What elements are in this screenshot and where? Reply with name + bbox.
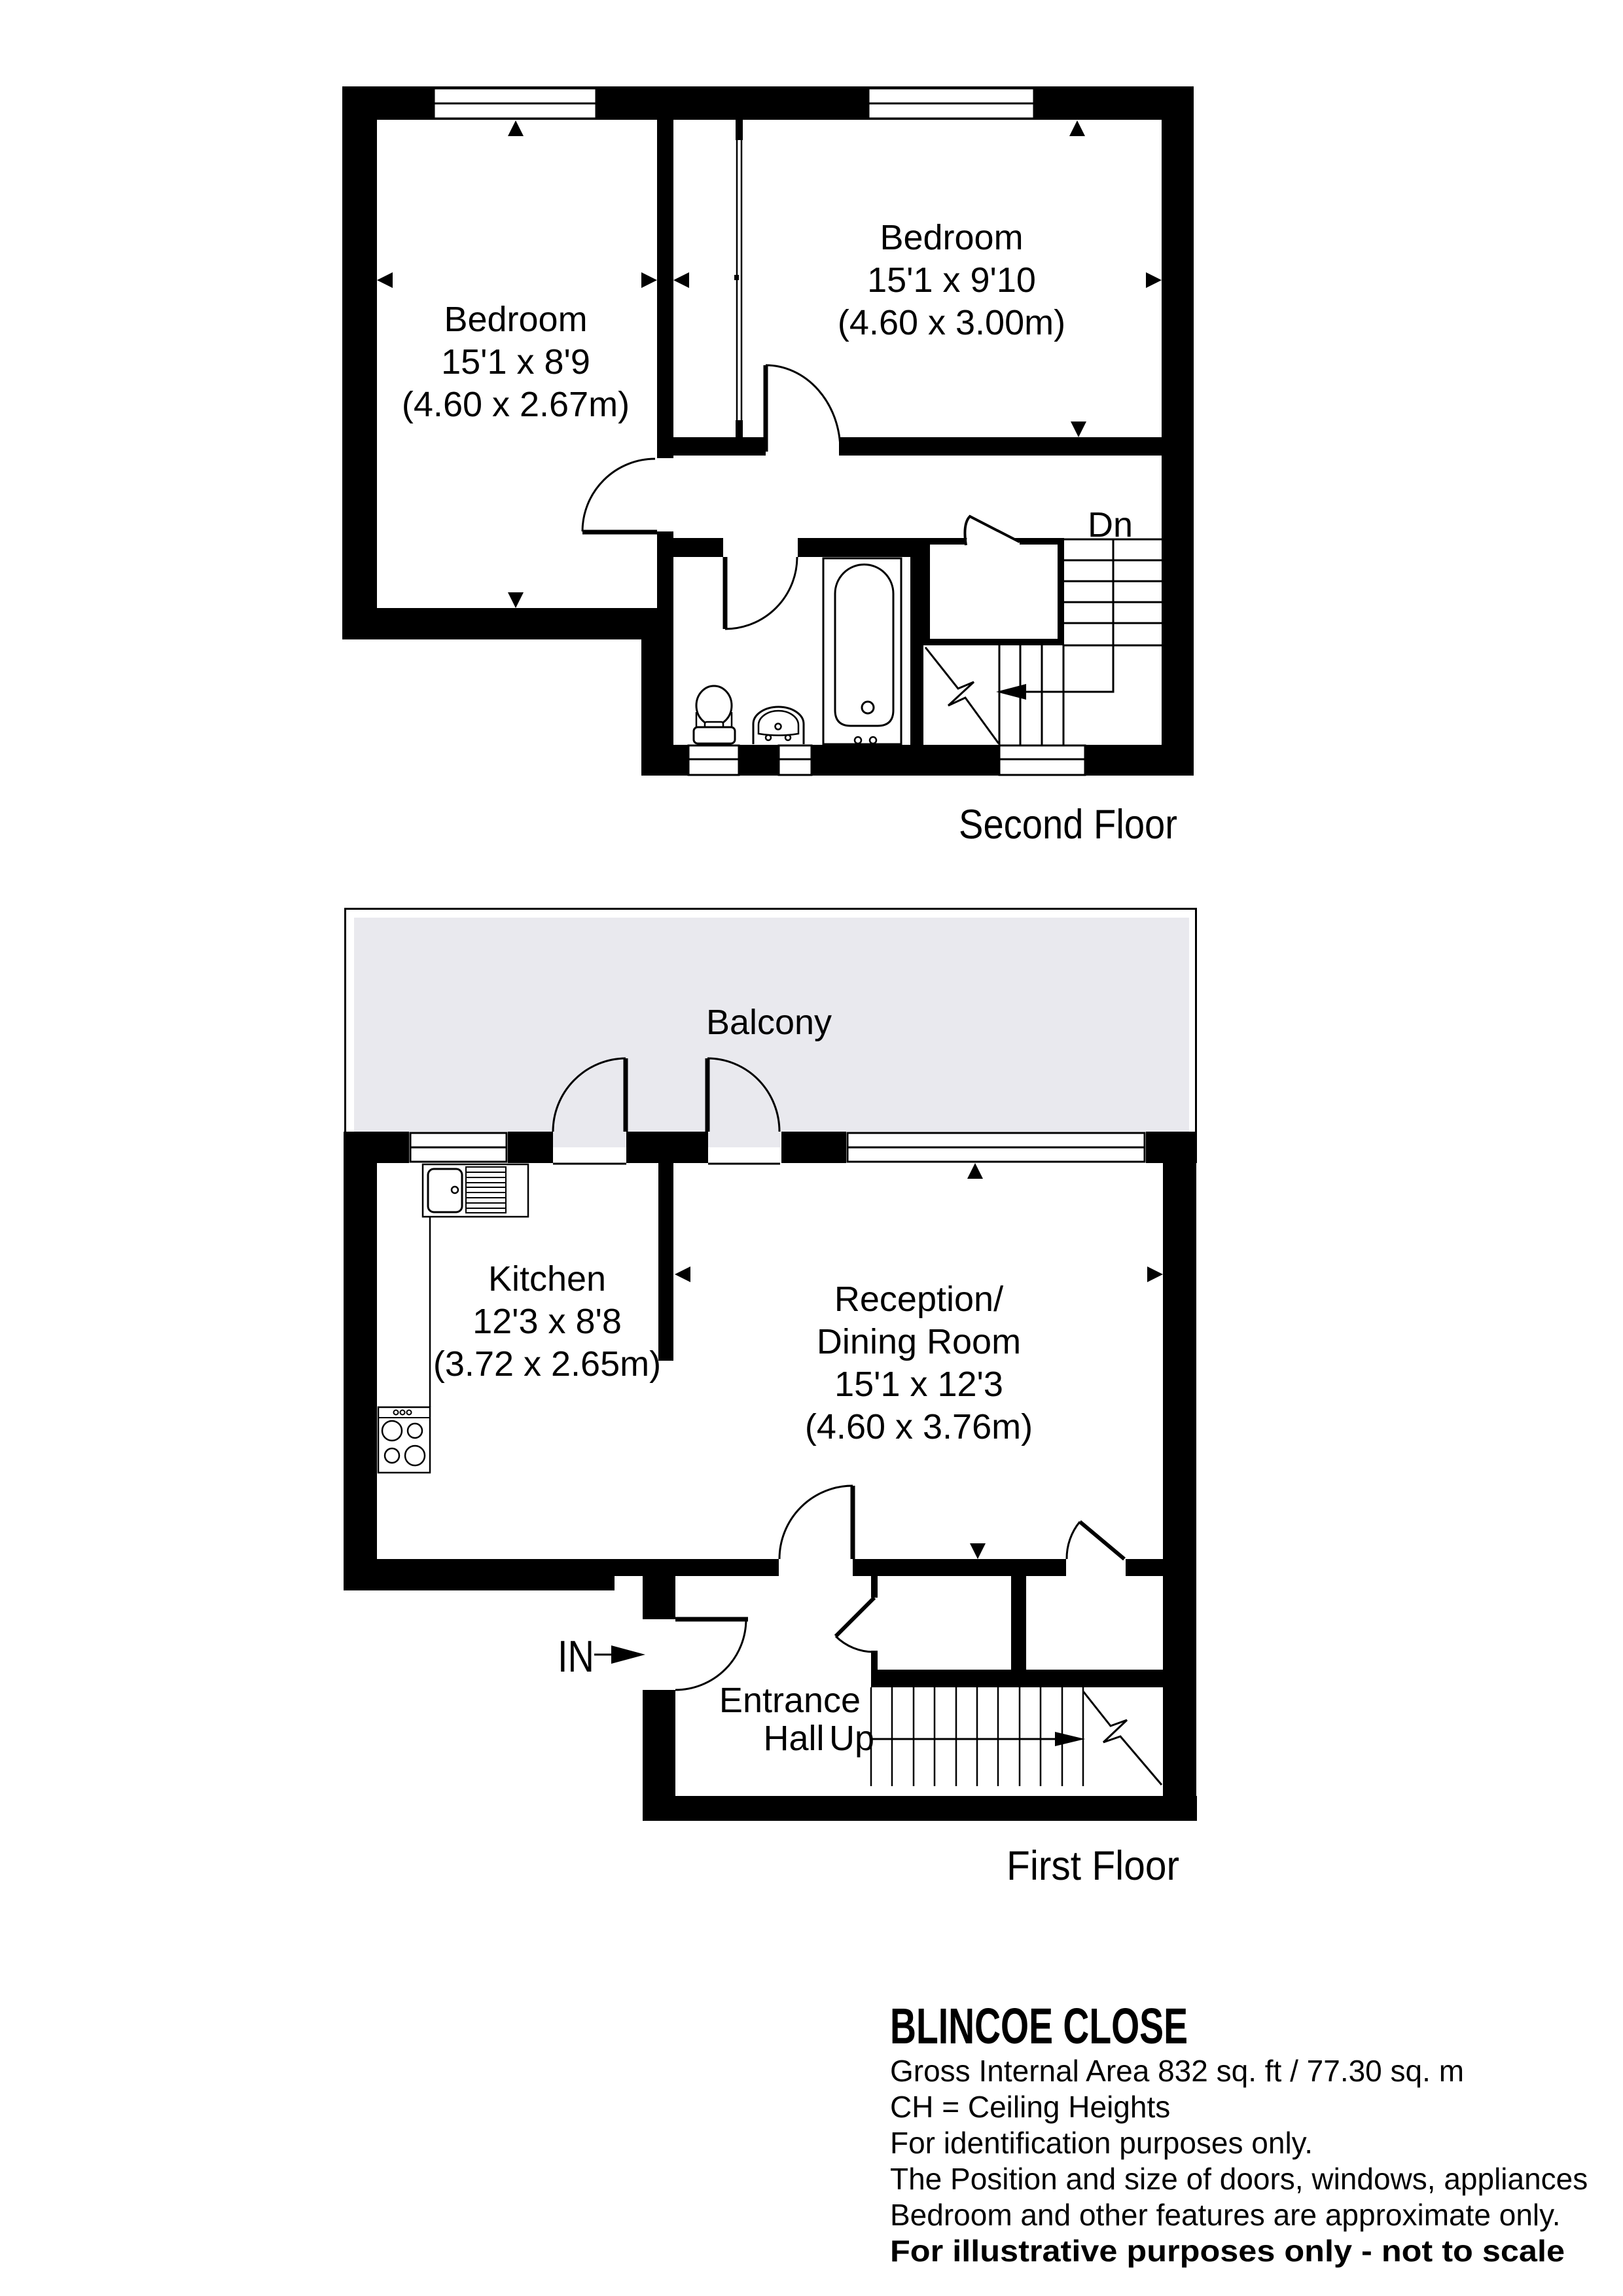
svg-text:Reception/: Reception/ — [834, 1280, 1003, 1319]
svg-text:The Position and size of doors: The Position and size of doors, windows,… — [890, 2162, 1588, 2196]
svg-text:Bedroom: Bedroom — [444, 300, 587, 339]
svg-text:Bedroom and other features are: Bedroom and other features are approxima… — [890, 2198, 1561, 2232]
svg-text:(3.72 x 2.65m): (3.72 x 2.65m) — [433, 1344, 661, 1384]
svg-text:Gross Internal Area 832 sq. ft: Gross Internal Area 832 sq. ft / 77.30 s… — [890, 2054, 1464, 2088]
svg-text:Dn: Dn — [1088, 505, 1133, 545]
svg-text:For identification purposes on: For identification purposes only. — [890, 2126, 1313, 2160]
svg-text:Second Floor: Second Floor — [959, 802, 1177, 848]
svg-text:Bedroom: Bedroom — [880, 218, 1023, 257]
svg-text:15'1 x 12'3: 15'1 x 12'3 — [834, 1365, 1003, 1404]
svg-text:12'3 x 8'8: 12'3 x 8'8 — [473, 1302, 622, 1341]
svg-text:Balcony: Balcony — [706, 1003, 832, 1042]
svg-text:IN: IN — [558, 1632, 594, 1681]
svg-text:Kitchen: Kitchen — [488, 1259, 606, 1299]
svg-text:Dining Room: Dining Room — [817, 1322, 1021, 1361]
svg-text:(4.60 x 3.00m): (4.60 x 3.00m) — [838, 303, 1065, 342]
svg-text:BLINCOE CLOSE: BLINCOE CLOSE — [890, 1998, 1188, 2054]
svg-text:CH = Ceiling Heights: CH = Ceiling Heights — [890, 2090, 1170, 2124]
svg-text:(4.60 x 3.76m): (4.60 x 3.76m) — [805, 1407, 1033, 1446]
svg-text:Entrance: Entrance — [719, 1681, 861, 1720]
svg-text:Up: Up — [829, 1719, 874, 1758]
svg-text:For illustrative purposes only: For illustrative purposes only - not to … — [890, 2234, 1565, 2268]
svg-text:First Floor: First Floor — [1007, 1843, 1179, 1889]
svg-text:Hall: Hall — [763, 1719, 824, 1758]
svg-text:15'1 x 9'10: 15'1 x 9'10 — [867, 260, 1036, 300]
svg-text:(4.60 x 2.67m): (4.60 x 2.67m) — [402, 385, 630, 424]
svg-text:15'1 x 8'9: 15'1 x 8'9 — [441, 342, 590, 382]
